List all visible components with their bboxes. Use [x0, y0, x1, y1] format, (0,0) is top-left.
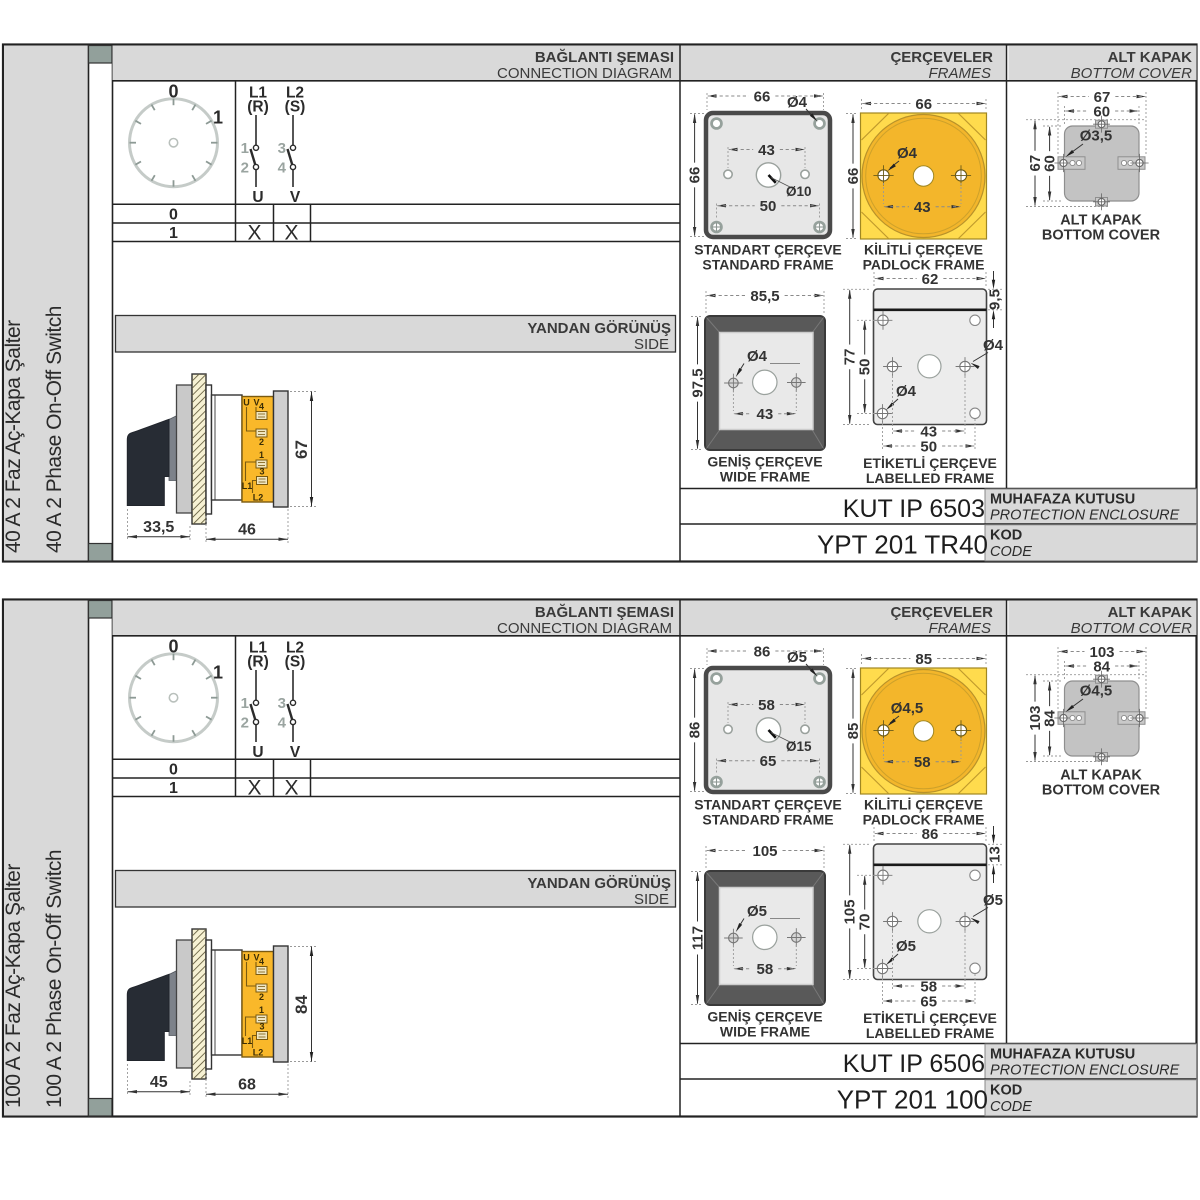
svg-text:2: 2	[259, 437, 264, 447]
svg-text:2: 2	[241, 160, 249, 177]
svg-text:13: 13	[987, 846, 1004, 863]
svg-text:YANDAN GÖRÜNÜŞ: YANDAN GÖRÜNÜŞ	[527, 320, 671, 337]
svg-text:3: 3	[278, 140, 286, 157]
svg-text:9,5: 9,5	[987, 289, 1004, 310]
svg-text:BOTTOM COVER: BOTTOM COVER	[1042, 228, 1161, 244]
svg-text:Ø4: Ø4	[787, 94, 808, 111]
svg-text:40 A 2 Faz Aç-Kapa Şalter: 40 A 2 Faz Aç-Kapa Şalter	[2, 320, 25, 553]
svg-text:PROTECTION ENCLOSURE: PROTECTION ENCLOSURE	[990, 508, 1180, 524]
svg-text:Ø4: Ø4	[897, 145, 918, 162]
svg-text:1: 1	[259, 450, 264, 460]
svg-text:58: 58	[758, 697, 775, 714]
svg-text:ALT KAPAK: ALT KAPAK	[1108, 49, 1193, 66]
svg-text:43: 43	[758, 142, 775, 159]
svg-text:MUHAFAZA KUTUSU: MUHAFAZA KUTUSU	[990, 1047, 1135, 1063]
svg-text:68: 68	[238, 1077, 256, 1094]
svg-text:X: X	[247, 222, 261, 245]
svg-text:0: 0	[168, 82, 178, 102]
svg-text:3: 3	[278, 695, 286, 712]
svg-text:WIDE FRAME: WIDE FRAME	[720, 469, 810, 485]
svg-text:SIDE: SIDE	[634, 891, 669, 908]
svg-text:V: V	[290, 744, 301, 761]
svg-text:97,5: 97,5	[690, 368, 707, 397]
svg-text:ALT KAPAK: ALT KAPAK	[1060, 768, 1142, 784]
svg-text:Ø15: Ø15	[786, 739, 812, 754]
svg-text:84: 84	[292, 995, 311, 1014]
svg-text:4: 4	[259, 402, 264, 412]
svg-text:3: 3	[259, 467, 264, 477]
svg-text:Ø5: Ø5	[983, 892, 1003, 909]
svg-text:66: 66	[687, 167, 704, 184]
svg-text:MUHAFAZA KUTUSU: MUHAFAZA KUTUSU	[990, 492, 1135, 508]
svg-text:L2: L2	[253, 493, 264, 503]
svg-text:CONNECTION DIAGRAM: CONNECTION DIAGRAM	[497, 65, 672, 82]
svg-text:(S): (S)	[285, 654, 306, 671]
svg-text:U: U	[252, 744, 263, 761]
svg-text:Ø3,5: Ø3,5	[1080, 128, 1113, 145]
svg-text:60: 60	[1042, 155, 1059, 172]
svg-text:LABELLED FRAME: LABELLED FRAME	[866, 1025, 994, 1041]
svg-text:0: 0	[169, 207, 178, 224]
svg-text:Ø5: Ø5	[747, 903, 767, 920]
svg-text:1: 1	[169, 780, 178, 797]
svg-text:50: 50	[857, 359, 874, 376]
svg-text:65: 65	[760, 753, 777, 770]
svg-text:1: 1	[213, 663, 223, 683]
svg-text:PROTECTION ENCLOSURE: PROTECTION ENCLOSURE	[990, 1063, 1180, 1079]
svg-text:BOTTOM COVER: BOTTOM COVER	[1042, 783, 1161, 799]
svg-text:66: 66	[754, 88, 771, 105]
svg-text:WIDE FRAME: WIDE FRAME	[720, 1024, 810, 1040]
svg-text:1: 1	[241, 140, 249, 157]
svg-text:0: 0	[169, 762, 178, 779]
svg-text:BAĞLANTI ŞEMASI: BAĞLANTI ŞEMASI	[535, 603, 674, 621]
svg-text:45: 45	[150, 1074, 168, 1091]
svg-text:85: 85	[915, 651, 932, 668]
svg-text:Ø4: Ø4	[747, 348, 768, 365]
svg-text:100 A 2 Faz Aç-Kapa Şalter: 100 A 2 Faz Aç-Kapa Şalter	[2, 864, 25, 1108]
svg-text:2: 2	[259, 992, 264, 1002]
svg-text:2: 2	[241, 715, 249, 732]
svg-text:60: 60	[1093, 103, 1110, 120]
svg-text:YPT 201 100: YPT 201 100	[837, 1085, 988, 1115]
svg-text:(R): (R)	[247, 654, 269, 671]
svg-text:66: 66	[915, 96, 932, 113]
svg-text:YANDAN GÖRÜNÜŞ: YANDAN GÖRÜNÜŞ	[527, 875, 671, 892]
svg-text:85,5: 85,5	[750, 288, 779, 305]
svg-text:65: 65	[920, 993, 937, 1010]
svg-text:Ø4: Ø4	[983, 337, 1004, 354]
svg-text:GENİŞ ÇERÇEVE: GENİŞ ÇERÇEVE	[707, 454, 822, 470]
svg-text:KOD: KOD	[990, 528, 1022, 544]
svg-text:67: 67	[292, 440, 311, 459]
svg-text:40 A 2 Phase On-Off Switch: 40 A 2 Phase On-Off Switch	[43, 306, 66, 553]
svg-text:100 A 2 Phase On-Off Switch: 100 A 2 Phase On-Off Switch	[43, 850, 66, 1108]
svg-text:ALT KAPAK: ALT KAPAK	[1108, 604, 1193, 621]
svg-text:4: 4	[278, 715, 287, 732]
svg-text:KİLİTLİ ÇERÇEVE: KİLİTLİ ÇERÇEVE	[864, 797, 983, 813]
svg-text:ETİKETLİ ÇERÇEVE: ETİKETLİ ÇERÇEVE	[863, 455, 997, 471]
svg-text:CODE: CODE	[990, 544, 1032, 560]
svg-text:CONNECTION DIAGRAM: CONNECTION DIAGRAM	[497, 620, 672, 637]
svg-text:KİLİTLİ ÇERÇEVE: KİLİTLİ ÇERÇEVE	[864, 242, 983, 258]
svg-text:Ø4,5: Ø4,5	[1080, 683, 1113, 700]
svg-text:(S): (S)	[285, 99, 306, 116]
svg-text:STANDARD FRAME: STANDARD FRAME	[702, 257, 833, 273]
svg-text:BOTTOM COVER: BOTTOM COVER	[1071, 620, 1193, 637]
svg-text:46: 46	[238, 522, 256, 539]
svg-text:85: 85	[845, 723, 862, 740]
svg-text:4: 4	[259, 957, 264, 967]
svg-text:66: 66	[845, 168, 862, 185]
svg-text:Ø5: Ø5	[896, 938, 916, 955]
svg-text:YPT 201 TR40: YPT 201 TR40	[817, 530, 988, 560]
svg-text:84: 84	[1093, 658, 1110, 675]
svg-text:43: 43	[757, 406, 774, 423]
svg-text:GENİŞ ÇERÇEVE: GENİŞ ÇERÇEVE	[707, 1009, 822, 1025]
svg-text:KUT IP 6503: KUT IP 6503	[843, 495, 985, 523]
svg-text:ÇERÇEVELER: ÇERÇEVELER	[890, 604, 993, 621]
svg-text:BOTTOM COVER: BOTTOM COVER	[1071, 65, 1193, 82]
svg-text:X: X	[284, 222, 298, 245]
svg-text:CODE: CODE	[990, 1099, 1032, 1115]
svg-text:117: 117	[690, 926, 707, 950]
svg-text:50: 50	[920, 438, 937, 455]
svg-text:BAĞLANTI ŞEMASI: BAĞLANTI ŞEMASI	[535, 48, 674, 66]
svg-text:(R): (R)	[247, 99, 269, 116]
svg-text:43: 43	[914, 199, 931, 216]
svg-text:L1: L1	[242, 481, 253, 491]
svg-text:33,5: 33,5	[143, 519, 174, 536]
svg-text:84: 84	[1042, 710, 1059, 727]
svg-text:KOD: KOD	[990, 1083, 1022, 1099]
svg-text:105: 105	[752, 843, 777, 860]
svg-text:ETİKETLİ ÇERÇEVE: ETİKETLİ ÇERÇEVE	[863, 1010, 997, 1026]
svg-text:58: 58	[914, 754, 931, 771]
svg-text:1: 1	[213, 108, 223, 128]
svg-text:Ø10: Ø10	[786, 184, 812, 199]
svg-text:Ø5: Ø5	[787, 649, 807, 666]
svg-text:U: U	[243, 953, 250, 963]
svg-text:LABELLED FRAME: LABELLED FRAME	[866, 470, 994, 486]
svg-text:L2: L2	[253, 1048, 264, 1058]
svg-text:ÇERÇEVELER: ÇERÇEVELER	[890, 49, 993, 66]
svg-text:STANDARD FRAME: STANDARD FRAME	[702, 812, 833, 828]
svg-text:70: 70	[857, 914, 874, 931]
svg-text:KUT IP 6506: KUT IP 6506	[843, 1050, 985, 1078]
svg-text:ALT KAPAK: ALT KAPAK	[1060, 213, 1142, 229]
svg-text:V: V	[290, 189, 301, 206]
svg-text:3: 3	[259, 1022, 264, 1032]
svg-text:86: 86	[922, 826, 939, 843]
svg-text:Ø4,5: Ø4,5	[891, 700, 924, 717]
svg-text:STANDART ÇERÇEVE: STANDART ÇERÇEVE	[694, 242, 842, 258]
svg-text:86: 86	[754, 643, 771, 660]
svg-text:FRAMES: FRAMES	[928, 65, 991, 82]
svg-text:62: 62	[922, 271, 939, 288]
svg-text:U: U	[243, 398, 250, 408]
svg-text:86: 86	[687, 722, 704, 739]
svg-text:X: X	[284, 777, 298, 800]
svg-text:58: 58	[757, 961, 774, 978]
svg-text:STANDART ÇERÇEVE: STANDART ÇERÇEVE	[694, 797, 842, 813]
svg-text:0: 0	[168, 637, 178, 657]
svg-text:50: 50	[760, 198, 777, 215]
svg-text:4: 4	[278, 160, 287, 177]
svg-text:FRAMES: FRAMES	[928, 620, 991, 637]
svg-text:SIDE: SIDE	[634, 336, 669, 353]
svg-text:1: 1	[259, 1005, 264, 1015]
svg-text:Ø4: Ø4	[896, 383, 917, 400]
svg-text:1: 1	[169, 225, 178, 242]
svg-text:L1: L1	[242, 1036, 253, 1046]
svg-text:X: X	[247, 777, 261, 800]
svg-text:1: 1	[241, 695, 249, 712]
svg-text:U: U	[252, 189, 263, 206]
